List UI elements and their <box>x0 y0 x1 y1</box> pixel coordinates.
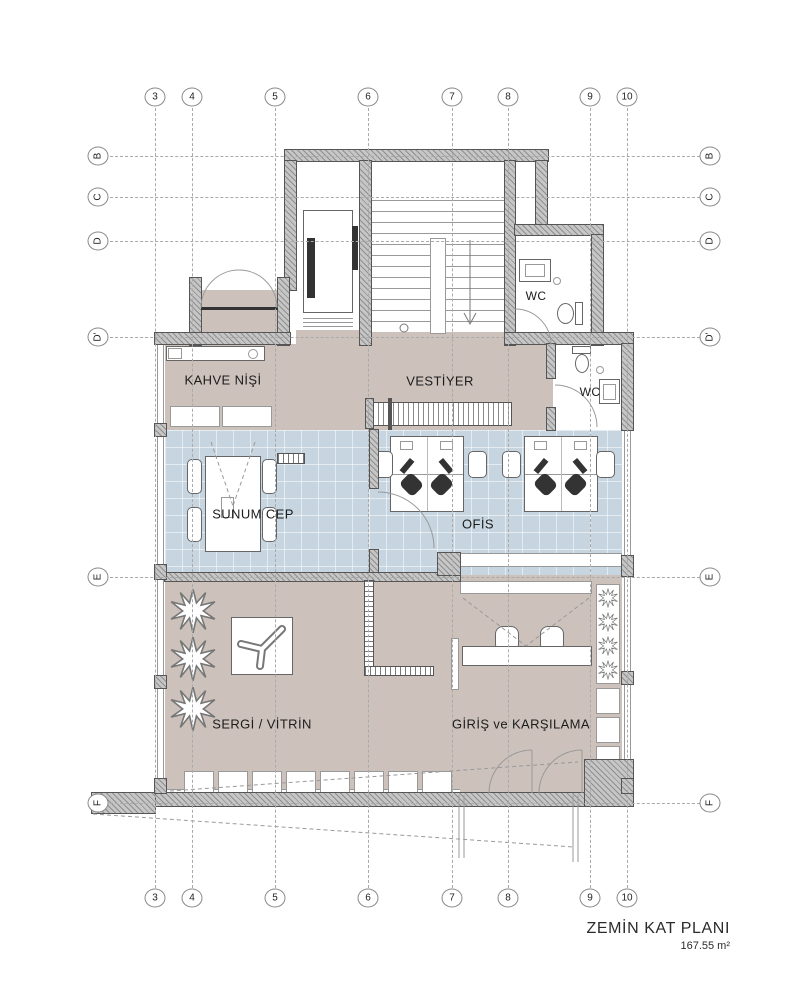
plant-icon <box>598 636 618 661</box>
room-label-sergi-vitrin: SERGİ / VİTRİN <box>212 717 312 732</box>
terrace-door-leaf <box>201 307 278 310</box>
elevator-counterweight <box>352 226 358 270</box>
wall-segment <box>370 550 378 575</box>
grid-column-bubble-top-7: 7 <box>442 88 463 107</box>
desk-papers <box>574 441 587 450</box>
grid-row-bubble-left-B: B <box>88 147 109 166</box>
vitrine-box <box>252 771 282 793</box>
grid-column-bubble-bottom-4: 4 <box>182 889 203 908</box>
floor-drain <box>553 277 561 285</box>
wall-segment <box>547 408 555 430</box>
grid-row-bubble-right-D': D' <box>700 328 721 347</box>
grid-column-bubble-top-4: 4 <box>182 88 203 107</box>
guest-chair <box>596 451 615 478</box>
monitor <box>534 458 549 474</box>
monitor <box>400 458 415 474</box>
wall-pier <box>155 676 166 688</box>
grid-column-line-7 <box>452 108 453 888</box>
low-wall <box>278 454 304 463</box>
toilet-bowl <box>557 303 574 324</box>
grid-row-bubble-right-B: B <box>700 147 721 166</box>
floor-plan-canvas: 334455667788991010BBCCDDD'D'EEFF <box>0 0 794 1000</box>
grid-column-line-6 <box>368 108 369 888</box>
chair <box>187 459 202 494</box>
desk-papers <box>534 441 547 450</box>
wall-segment <box>155 333 290 344</box>
grid-row-bubble-right-F: F <box>700 794 721 813</box>
office-chair <box>563 472 588 497</box>
grid-column-line-4 <box>192 108 193 888</box>
grid-column-bubble-bottom-9: 9 <box>580 889 601 908</box>
grid-column-bubble-bottom-5: 5 <box>265 889 286 908</box>
wall-segment <box>536 161 547 230</box>
floor-drain <box>596 366 604 374</box>
desk-divider <box>561 437 562 511</box>
grid-column-line-5 <box>275 108 276 888</box>
grid-row-line-D' <box>110 337 700 338</box>
grid-row-line-D <box>110 241 700 242</box>
desk-divider <box>427 437 428 511</box>
office-chair <box>429 472 454 497</box>
vitrine-box <box>218 771 248 793</box>
wall-pier <box>155 424 166 436</box>
office-chair <box>399 472 424 497</box>
grid-column-bubble-top-8: 8 <box>498 88 519 107</box>
column <box>438 553 460 575</box>
grid-column-bubble-top-5: 5 <box>265 88 286 107</box>
grid-column-bubble-bottom-6: 6 <box>358 889 379 908</box>
plant-icon <box>598 588 618 613</box>
desk-papers <box>400 441 413 450</box>
wall-segment <box>285 161 296 290</box>
grid-row-bubble-left-F: F <box>88 794 109 813</box>
vitrine-box <box>354 771 384 793</box>
room-label-kahve-nisi: KAHVE NİŞİ <box>185 373 262 388</box>
grid-row-bubble-left-D': D' <box>88 328 109 347</box>
monitor <box>573 458 588 474</box>
wall-segment <box>155 793 595 806</box>
grid-row-bubble-right-D: D <box>700 232 721 251</box>
grid-row-bubble-right-E: E <box>700 568 721 587</box>
wall-segment <box>592 235 603 345</box>
grid-row-bubble-left-E: E <box>88 568 109 587</box>
ramp-line <box>93 814 574 847</box>
grid-column-bubble-top-10: 10 <box>617 88 638 107</box>
plant-icon <box>170 686 216 737</box>
top-right-room-floor <box>515 161 536 225</box>
grid-column-bubble-top-3: 3 <box>145 88 166 107</box>
base-cabinet <box>222 406 272 427</box>
toilet-tank <box>575 302 583 325</box>
grid-column-line-8 <box>508 108 509 888</box>
grid-column-line-9 <box>590 108 591 888</box>
wall-segment <box>370 430 378 488</box>
sink-basin <box>525 264 545 277</box>
grid-column-line-3 <box>155 108 156 888</box>
display-stand-y-icon <box>232 618 292 674</box>
guest-chair <box>502 451 521 478</box>
exhibition-zone-floor <box>165 575 622 793</box>
grid-row-bubble-left-D: D <box>88 232 109 251</box>
display-stand <box>231 617 293 675</box>
plant-icon <box>170 588 216 639</box>
grid-row-bubble-right-C: C <box>700 188 721 207</box>
toilet-tank <box>572 346 591 354</box>
wall-segment <box>505 161 515 345</box>
room-label-giris-karsilama: GİRİŞ ve KARŞILAMA <box>452 717 590 732</box>
grid-column-bubble-bottom-7: 7 <box>442 889 463 908</box>
grid-column-bubble-top-9: 9 <box>580 88 601 107</box>
chair <box>187 507 202 542</box>
display-box <box>596 688 620 714</box>
reception-cabinet <box>460 581 592 594</box>
grid-row-line-F <box>110 803 700 804</box>
wall-pier <box>155 779 166 793</box>
grid-row-line-E <box>110 577 700 578</box>
partition-wall <box>388 398 392 430</box>
cooktop <box>168 348 182 359</box>
kitchen-sink <box>248 349 258 359</box>
wall-segment <box>547 344 555 378</box>
workstation-cluster <box>524 436 598 512</box>
grid-column-bubble-bottom-10: 10 <box>617 889 638 908</box>
stair-stringer <box>430 238 446 334</box>
toilet-bowl <box>575 354 589 373</box>
office-bench <box>460 553 622 567</box>
vitrine-box <box>388 771 418 793</box>
display-wall-vertical <box>365 581 373 674</box>
room-label-vestiyer: VESTİYER <box>406 374 474 389</box>
vitrine-box <box>286 771 316 793</box>
sink-basin <box>603 384 616 400</box>
elevator-sill <box>303 318 353 328</box>
wall-segment <box>360 161 371 345</box>
office-chair <box>533 472 558 497</box>
elevator-mechanism <box>307 238 315 298</box>
wall-segment <box>505 333 633 344</box>
grid-column-bubble-top-6: 6 <box>358 88 379 107</box>
drawing-title: ZEMİN KAT PLANI <box>586 920 730 938</box>
guest-chair <box>468 451 487 478</box>
vitrine-box <box>320 771 350 793</box>
grid-row-line-C <box>110 197 700 198</box>
grid-row-bubble-left-C: C <box>88 188 109 207</box>
plant-icon <box>598 660 618 685</box>
room-label-wc-lower: WC <box>580 385 601 399</box>
grid-column-bubble-bottom-3: 3 <box>145 889 166 908</box>
plant-icon <box>598 612 618 637</box>
display-wall-horizontal <box>365 667 433 675</box>
base-cabinet <box>170 406 220 427</box>
room-label-ofis: OFİS <box>462 517 494 532</box>
reception-desk <box>462 646 592 666</box>
drawing-area: 167.55 m² <box>586 940 730 952</box>
room-label-sunum-cep: SUNUM CEP <box>212 507 294 522</box>
plant-icon <box>170 636 216 687</box>
display-box <box>596 717 620 743</box>
grid-column-line-10 <box>627 108 628 888</box>
vitrine-box <box>422 771 452 793</box>
grid-column-bubble-bottom-8: 8 <box>498 889 519 908</box>
coat-rack <box>372 402 512 426</box>
room-label-wc-upper: WC <box>526 289 547 303</box>
grid-row-line-B <box>110 156 700 157</box>
vitrine-box <box>184 771 214 793</box>
title-block: ZEMİN KAT PLANI 167.55 m² <box>586 920 730 952</box>
